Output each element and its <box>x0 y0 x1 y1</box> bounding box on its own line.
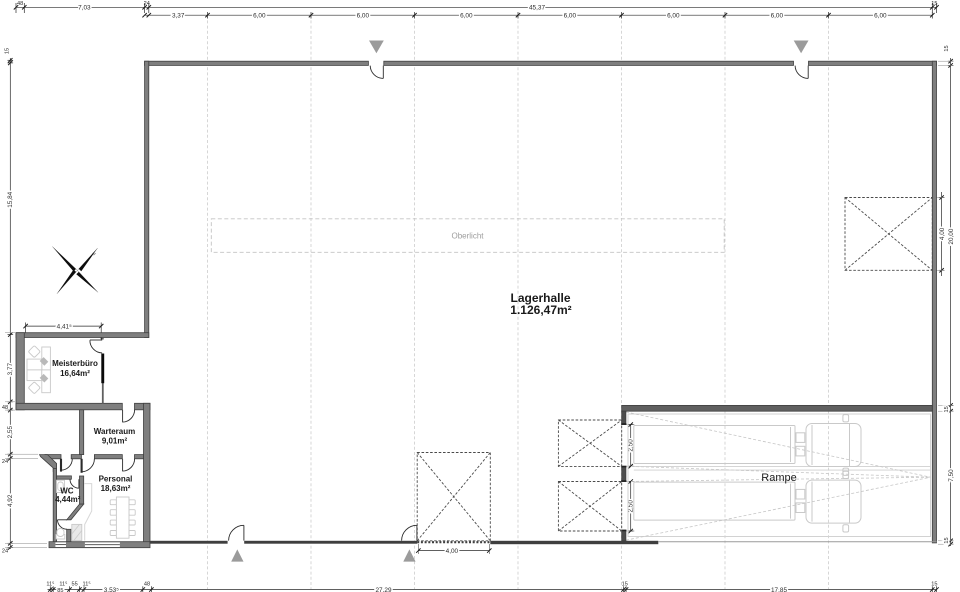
svg-text:11⁵: 11⁵ <box>46 581 54 588</box>
svg-text:4,00: 4,00 <box>446 548 459 555</box>
svg-text:Oberlicht: Oberlicht <box>451 231 484 240</box>
svg-text:Meisterbüro: Meisterbüro <box>52 359 98 368</box>
svg-text:1.126,47m²: 1.126,47m² <box>510 303 571 317</box>
svg-text:11⁵: 11⁵ <box>83 581 91 588</box>
svg-text:7,50: 7,50 <box>948 469 955 482</box>
svg-text:15,84: 15,84 <box>7 191 14 207</box>
svg-text:48: 48 <box>144 582 150 588</box>
svg-text:9,01m²: 9,01m² <box>102 437 128 446</box>
svg-text:2,55: 2,55 <box>7 426 14 439</box>
svg-text:6,00: 6,00 <box>564 13 577 20</box>
svg-text:4,92: 4,92 <box>7 494 14 507</box>
svg-text:16,64m²: 16,64m² <box>60 369 90 378</box>
svg-text:3,37: 3,37 <box>172 13 185 20</box>
svg-text:85: 85 <box>57 588 63 592</box>
svg-text:6,00: 6,00 <box>357 13 370 20</box>
svg-text:6,00: 6,00 <box>667 13 680 20</box>
svg-text:15: 15 <box>622 582 628 588</box>
svg-text:48: 48 <box>2 405 8 411</box>
svg-text:4,00: 4,00 <box>939 227 946 240</box>
svg-text:27,29: 27,29 <box>376 587 392 592</box>
svg-text:15: 15 <box>944 45 950 51</box>
svg-text:45,37: 45,37 <box>529 5 545 12</box>
svg-text:18,63m²: 18,63m² <box>101 484 131 493</box>
svg-text:24: 24 <box>144 1 150 7</box>
svg-text:15: 15 <box>931 582 937 588</box>
svg-text:3,53⁵: 3,53⁵ <box>104 587 119 592</box>
svg-text:20,00: 20,00 <box>948 228 955 244</box>
svg-text:4,41⁵: 4,41⁵ <box>57 323 72 330</box>
svg-text:55: 55 <box>71 582 77 588</box>
svg-text:7,03: 7,03 <box>78 5 91 12</box>
svg-text:6,00: 6,00 <box>460 13 473 20</box>
svg-text:6,00: 6,00 <box>253 13 266 20</box>
svg-text:24: 24 <box>2 459 8 465</box>
svg-text:48: 48 <box>17 1 23 7</box>
svg-text:Warteraum: Warteraum <box>94 427 136 436</box>
svg-text:15: 15 <box>4 48 10 54</box>
svg-text:15: 15 <box>944 537 950 543</box>
svg-text:24: 24 <box>2 549 8 555</box>
svg-text:17,85: 17,85 <box>771 587 787 592</box>
svg-text:11⁵: 11⁵ <box>59 581 67 588</box>
svg-text:4,44m²: 4,44m² <box>55 495 81 504</box>
svg-text:15: 15 <box>944 406 950 412</box>
svg-text:3,77: 3,77 <box>7 363 14 376</box>
svg-text:Rampe: Rampe <box>761 472 796 484</box>
svg-text:6,00: 6,00 <box>874 13 887 20</box>
svg-text:Personal: Personal <box>99 474 133 483</box>
svg-text:6,00: 6,00 <box>771 13 784 20</box>
svg-text:15: 15 <box>931 1 937 7</box>
